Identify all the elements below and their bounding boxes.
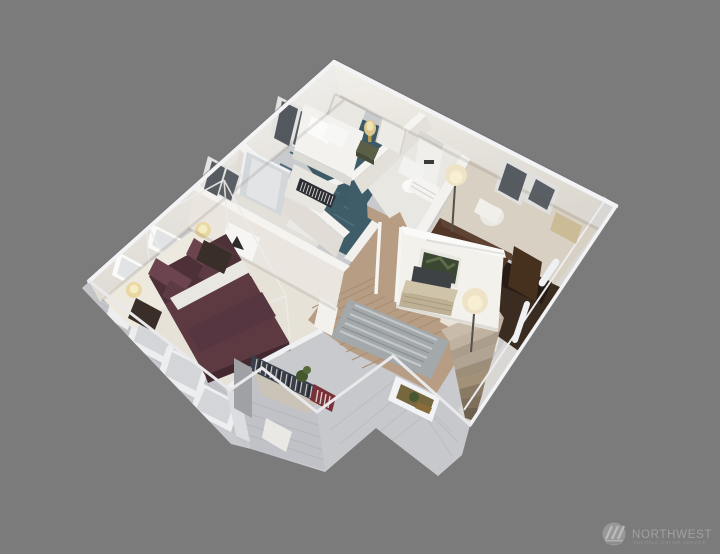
svg-text:MULTIPLE LISTING SERVICE: MULTIPLE LISTING SERVICE xyxy=(633,540,706,545)
